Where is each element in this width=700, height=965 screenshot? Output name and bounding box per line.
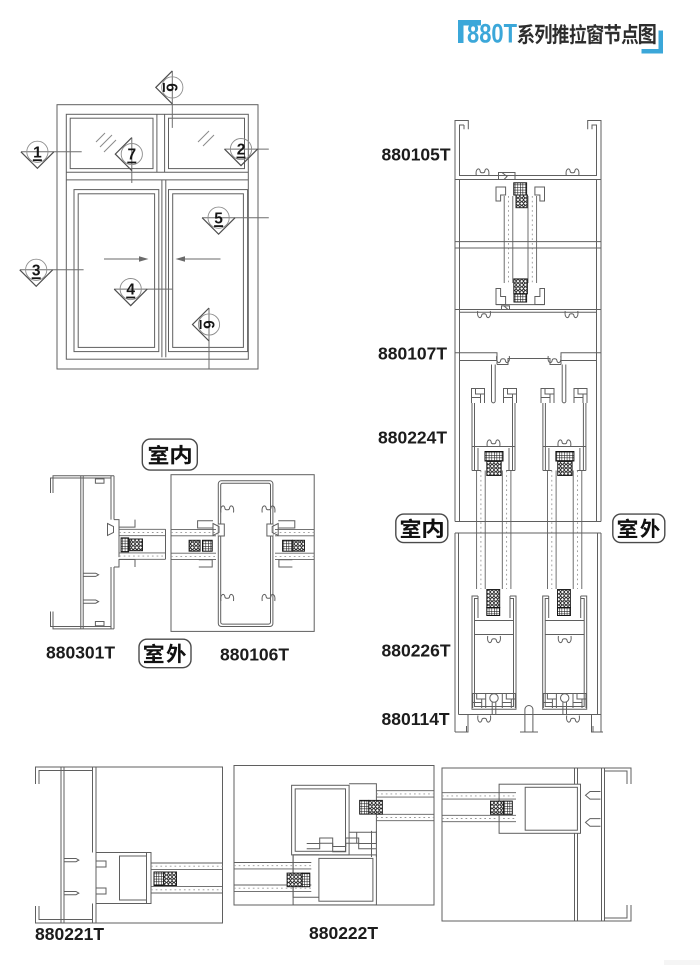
svg-text:3: 3 [32, 262, 41, 279]
svg-text:880106T: 880106T [220, 645, 289, 665]
svg-text:880222T: 880222T [309, 923, 378, 943]
svg-text:880301T: 880301T [46, 643, 115, 663]
svg-text:880107T: 880107T [378, 344, 447, 364]
svg-text:6: 6 [199, 320, 216, 329]
svg-text:880221T: 880221T [35, 924, 104, 944]
svg-text:2: 2 [237, 142, 246, 159]
svg-text:880105T: 880105T [382, 145, 451, 165]
svg-text:880226T: 880226T [382, 641, 451, 661]
svg-text:880T: 880T [467, 19, 517, 49]
svg-text:4: 4 [126, 282, 135, 299]
svg-text:880224T: 880224T [378, 428, 447, 448]
svg-text:5: 5 [214, 210, 223, 227]
svg-text:880114T: 880114T [382, 709, 450, 729]
svg-text:6: 6 [163, 83, 180, 92]
svg-text:7: 7 [127, 147, 136, 164]
svg-text:1: 1 [33, 144, 42, 161]
